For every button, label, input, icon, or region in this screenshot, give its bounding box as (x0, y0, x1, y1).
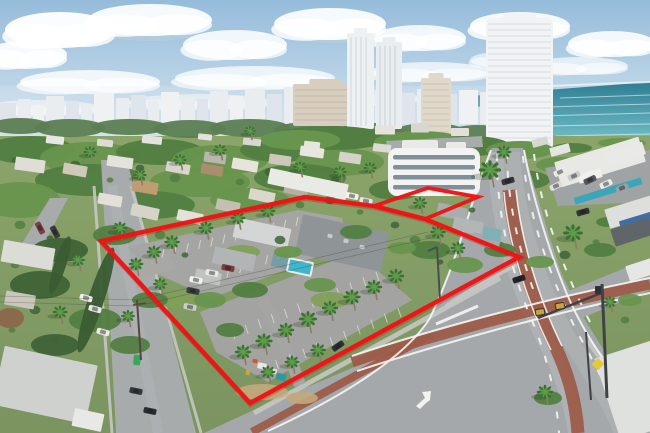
tree-dot (391, 222, 400, 229)
tree-dot (275, 236, 286, 244)
tree-dot (621, 317, 630, 324)
tree-dot (15, 221, 26, 229)
shrub-canopy (304, 278, 336, 292)
dirt-patch (286, 392, 318, 404)
tower-crown (429, 73, 444, 79)
aerial-photo-canvas (0, 0, 650, 433)
tree-canopy (260, 130, 340, 150)
house-roof (451, 128, 469, 136)
shrub-canopy (526, 256, 554, 268)
tree-dot (182, 252, 189, 257)
tree-dot (560, 251, 571, 259)
tree-dot (47, 235, 54, 240)
tree-dot (51, 337, 60, 344)
traffic-signal-head (555, 302, 565, 309)
shrub-canopy (618, 294, 642, 306)
office-window-band (393, 165, 475, 170)
tree-dot (410, 236, 421, 244)
tree-dot (357, 209, 364, 214)
tree-dot (9, 327, 16, 332)
tree-dot (469, 207, 476, 212)
cloud (21, 50, 67, 68)
shrub-canopy (274, 246, 302, 258)
tree-dot (593, 239, 600, 244)
cloud (575, 63, 628, 75)
shrub-canopy (194, 292, 226, 308)
shrub-canopy (216, 323, 244, 337)
tree-dot (236, 179, 245, 186)
shrub-canopy (340, 225, 372, 239)
shrub-canopy (110, 336, 150, 354)
tower-crown (354, 28, 368, 34)
tower-crown (383, 37, 396, 43)
house-roof (411, 124, 429, 133)
tower-crown (503, 13, 537, 19)
traffic-signal-head (595, 286, 601, 294)
traffic-signal-head (535, 308, 545, 315)
tower-crown (309, 79, 342, 85)
house-roof (375, 126, 395, 135)
shrub-canopy (232, 282, 268, 298)
cloud (144, 14, 212, 35)
tree-dot (107, 177, 114, 182)
office-window-band (393, 175, 475, 180)
cloud (230, 40, 287, 60)
aerial-photo (0, 0, 650, 433)
shrub-canopy (447, 257, 483, 273)
shrub-canopy (388, 242, 416, 254)
tree-dot (170, 174, 181, 182)
shrub-canopy (584, 243, 616, 257)
cloud (415, 33, 466, 50)
office-window-band (393, 155, 475, 160)
